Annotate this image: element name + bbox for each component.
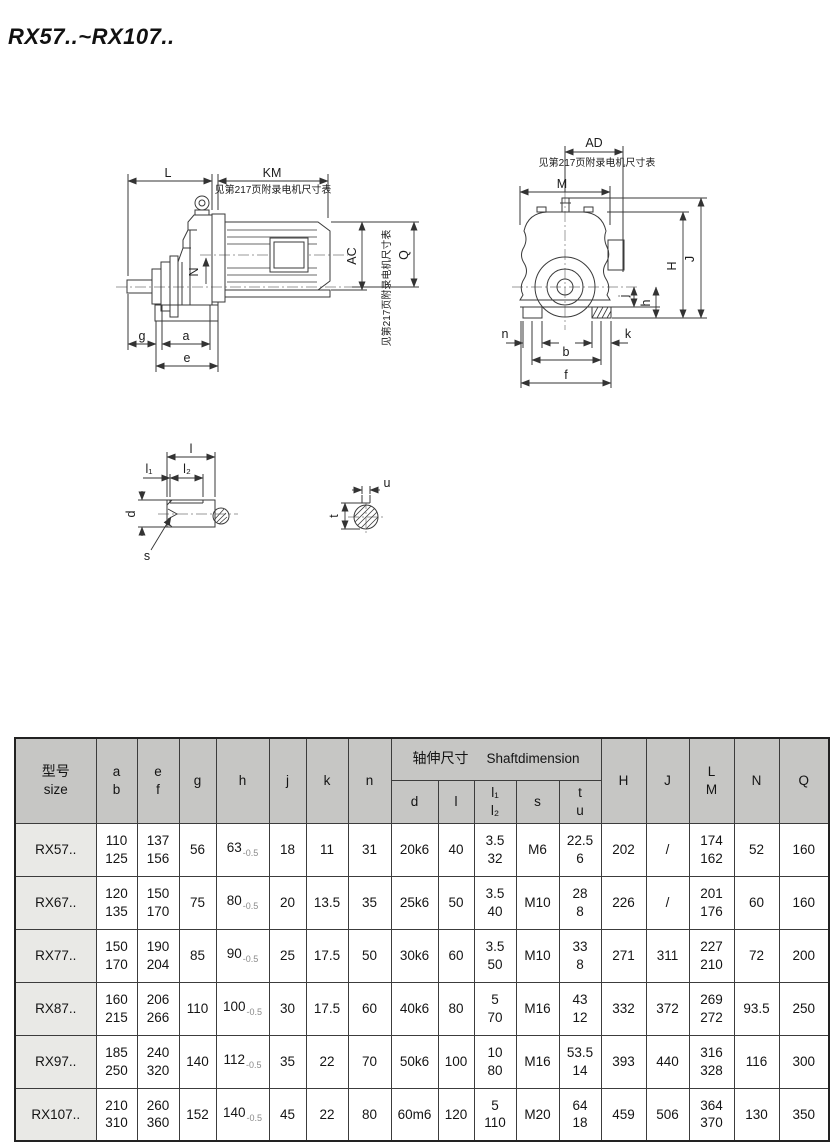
cell: 60m6 [391, 1088, 438, 1141]
col-header-N: N [734, 738, 779, 823]
cell: 100-0.5 [216, 982, 269, 1035]
shaft-detail-view: l l₁ l₂ d s [124, 442, 238, 563]
cell: 269272 [689, 982, 734, 1035]
dim-label-J: J [683, 256, 697, 262]
cell: 110125 [96, 823, 137, 876]
cell: 506 [646, 1088, 689, 1141]
table-row: RX107.. 210310 260360 152 140-0.5 45 22 … [15, 1088, 829, 1141]
col-header-H: H [601, 738, 646, 823]
cell: 112-0.5 [216, 1035, 269, 1088]
cell: / [646, 823, 689, 876]
col-header-ef: ef [137, 738, 179, 823]
row-size-label: RX97.. [15, 1035, 96, 1088]
cell: 80 [348, 1088, 391, 1141]
dim-label-k: k [625, 327, 632, 341]
dim-label-a: a [183, 329, 190, 343]
cell: 60 [348, 982, 391, 1035]
col-header-LM: LM [689, 738, 734, 823]
dim-label-d: d [124, 510, 138, 517]
cell: 100 [438, 1035, 474, 1088]
cell: 338 [559, 929, 601, 982]
cell: 160215 [96, 982, 137, 1035]
cell: 210310 [96, 1088, 137, 1141]
cell: 50k6 [391, 1035, 438, 1088]
col-header-d: d [391, 780, 438, 823]
front-view: AD 见第217页附录电机尺寸表 M H J j h n k b [502, 136, 707, 388]
cell: 160 [779, 823, 829, 876]
cell: 20k6 [391, 823, 438, 876]
cell: 202 [601, 823, 646, 876]
cell: 40k6 [391, 982, 438, 1035]
cell: 1080 [474, 1035, 516, 1088]
dim-label-Q: Q [397, 250, 411, 260]
cell: 3.550 [474, 929, 516, 982]
cell: 30 [269, 982, 306, 1035]
cell: 227210 [689, 929, 734, 982]
cell: 110 [179, 982, 216, 1035]
cell: 250 [779, 982, 829, 1035]
cell: M20 [516, 1088, 559, 1141]
cell: 140-0.5 [216, 1088, 269, 1141]
cell: 160 [779, 876, 829, 929]
cell: 440 [646, 1035, 689, 1088]
dim-label-f: f [564, 368, 568, 382]
cell: 150170 [137, 876, 179, 929]
dim-label-b: b [563, 345, 570, 359]
dim-label-t: t [327, 514, 341, 518]
cell: 52 [734, 823, 779, 876]
dim-label-u: u [384, 476, 391, 490]
col-header-size: 型号size [15, 738, 96, 823]
col-header-l12: l₁l₂ [474, 780, 516, 823]
cell: 190204 [137, 929, 179, 982]
cell: 364370 [689, 1088, 734, 1141]
technical-drawings: L KM 见第217页附录电机尺寸表 AC Q 见第217页附录电机尺寸表 N … [0, 0, 840, 700]
dim-label-n: n [502, 327, 509, 341]
cell: 22 [306, 1035, 348, 1088]
cell: 17.5 [306, 929, 348, 982]
motor-note-front: 见第217页附录电机尺寸表 [539, 156, 656, 169]
cell: M10 [516, 876, 559, 929]
cell: 393 [601, 1035, 646, 1088]
cell: 372 [646, 982, 689, 1035]
cell: 316328 [689, 1035, 734, 1088]
cell: 137156 [137, 823, 179, 876]
cell: 25k6 [391, 876, 438, 929]
key-section-view: u t [327, 476, 391, 536]
cell: 40 [438, 823, 474, 876]
cell: 3.540 [474, 876, 516, 929]
cell: 25 [269, 929, 306, 982]
col-header-tu: tu [559, 780, 601, 823]
cell: 20 [269, 876, 306, 929]
cell: 90-0.5 [216, 929, 269, 982]
side-view: L KM 见第217页附录电机尺寸表 AC Q 见第217页附录电机尺寸表 N … [116, 166, 419, 372]
motor-note-top: 见第217页附录电机尺寸表 [215, 183, 332, 196]
cell: 72 [734, 929, 779, 982]
dim-label-j: j [617, 295, 631, 299]
cell: 311 [646, 929, 689, 982]
cell: 22 [306, 1088, 348, 1141]
dim-label-N: N [187, 267, 201, 276]
cell: 140 [179, 1035, 216, 1088]
dim-label-M: M [557, 177, 567, 191]
cell: 35 [348, 876, 391, 929]
table-row: RX77.. 150170 190204 85 90-0.5 25 17.5 5… [15, 929, 829, 982]
cell: 85 [179, 929, 216, 982]
row-size-label: RX107.. [15, 1088, 96, 1141]
dim-label-s: s [144, 549, 150, 563]
cell: 60 [438, 929, 474, 982]
dim-label-h: h [639, 299, 653, 306]
cell: 174162 [689, 823, 734, 876]
col-header-n: n [348, 738, 391, 823]
col-header-J: J [646, 738, 689, 823]
cell: 60 [734, 876, 779, 929]
dim-label-L: L [165, 166, 172, 180]
cell: 4312 [559, 982, 601, 1035]
col-group-shaft-dimension: 轴伸尺寸Shaftdimension [391, 738, 601, 780]
col-header-Q: Q [779, 738, 829, 823]
cell: 93.5 [734, 982, 779, 1035]
col-header-s: s [516, 780, 559, 823]
cell: 350 [779, 1088, 829, 1141]
cell: 332 [601, 982, 646, 1035]
cell: M16 [516, 1035, 559, 1088]
dim-label-g: g [139, 329, 146, 343]
col-header-k: k [306, 738, 348, 823]
cell: 3.532 [474, 823, 516, 876]
cell: 459 [601, 1088, 646, 1141]
table-row: RX57.. 110125 137156 56 63-0.5 18 11 31 … [15, 823, 829, 876]
dim-label-l1: l₁ [146, 462, 153, 476]
cell: 116 [734, 1035, 779, 1088]
cell: M16 [516, 982, 559, 1035]
cell: 53.514 [559, 1035, 601, 1088]
cell: / [646, 876, 689, 929]
cell: 35 [269, 1035, 306, 1088]
cell: 152 [179, 1088, 216, 1141]
cell: 6418 [559, 1088, 601, 1141]
cell: 13.5 [306, 876, 348, 929]
cell: 271 [601, 929, 646, 982]
dim-label-AD: AD [585, 136, 602, 150]
cell: 75 [179, 876, 216, 929]
cell: 18 [269, 823, 306, 876]
cell: 150170 [96, 929, 137, 982]
col-header-j: j [269, 738, 306, 823]
motor-note-side: 见第217页附录电机尺寸表 [380, 230, 393, 347]
cell: 300 [779, 1035, 829, 1088]
dim-label-H: H [665, 261, 679, 270]
cell: 17.5 [306, 982, 348, 1035]
cell: 130 [734, 1088, 779, 1141]
col-header-g: g [179, 738, 216, 823]
cell: 120 [438, 1088, 474, 1141]
dim-label-AC: AC [345, 247, 359, 264]
cell: 30k6 [391, 929, 438, 982]
cell: 70 [348, 1035, 391, 1088]
table-row: RX67.. 120135 150170 75 80-0.5 20 13.5 3… [15, 876, 829, 929]
cell: 50 [438, 876, 474, 929]
cell: 11 [306, 823, 348, 876]
cell: M6 [516, 823, 559, 876]
row-size-label: RX77.. [15, 929, 96, 982]
cell: 288 [559, 876, 601, 929]
col-header-h: h [216, 738, 269, 823]
cell: 63-0.5 [216, 823, 269, 876]
row-size-label: RX67.. [15, 876, 96, 929]
cell: 56 [179, 823, 216, 876]
cell: 22.56 [559, 823, 601, 876]
cell: 185250 [96, 1035, 137, 1088]
cell: 120135 [96, 876, 137, 929]
dim-label-l: l [190, 442, 193, 456]
cell: 45 [269, 1088, 306, 1141]
cell: 5110 [474, 1088, 516, 1141]
col-header-ab: ab [96, 738, 137, 823]
cell: 226 [601, 876, 646, 929]
cell: 240320 [137, 1035, 179, 1088]
cell: 50 [348, 929, 391, 982]
dimension-table: 型号size ab ef g h j k n 轴伸尺寸Shaftdimensio… [14, 737, 830, 1142]
cell: 201176 [689, 876, 734, 929]
cell: M10 [516, 929, 559, 982]
cell: 80 [438, 982, 474, 1035]
cell: 80-0.5 [216, 876, 269, 929]
table-row: RX97.. 185250 240320 140 112-0.5 35 22 7… [15, 1035, 829, 1088]
dim-label-l2: l₂ [183, 462, 191, 476]
cell: 570 [474, 982, 516, 1035]
table-row: RX87.. 160215 206266 110 100-0.5 30 17.5… [15, 982, 829, 1035]
cell: 200 [779, 929, 829, 982]
cell: 31 [348, 823, 391, 876]
row-size-label: RX87.. [15, 982, 96, 1035]
cell: 206266 [137, 982, 179, 1035]
dim-label-KM: KM [263, 166, 282, 180]
cell: 260360 [137, 1088, 179, 1141]
row-size-label: RX57.. [15, 823, 96, 876]
col-header-l: l [438, 780, 474, 823]
dim-label-e: e [184, 351, 191, 365]
